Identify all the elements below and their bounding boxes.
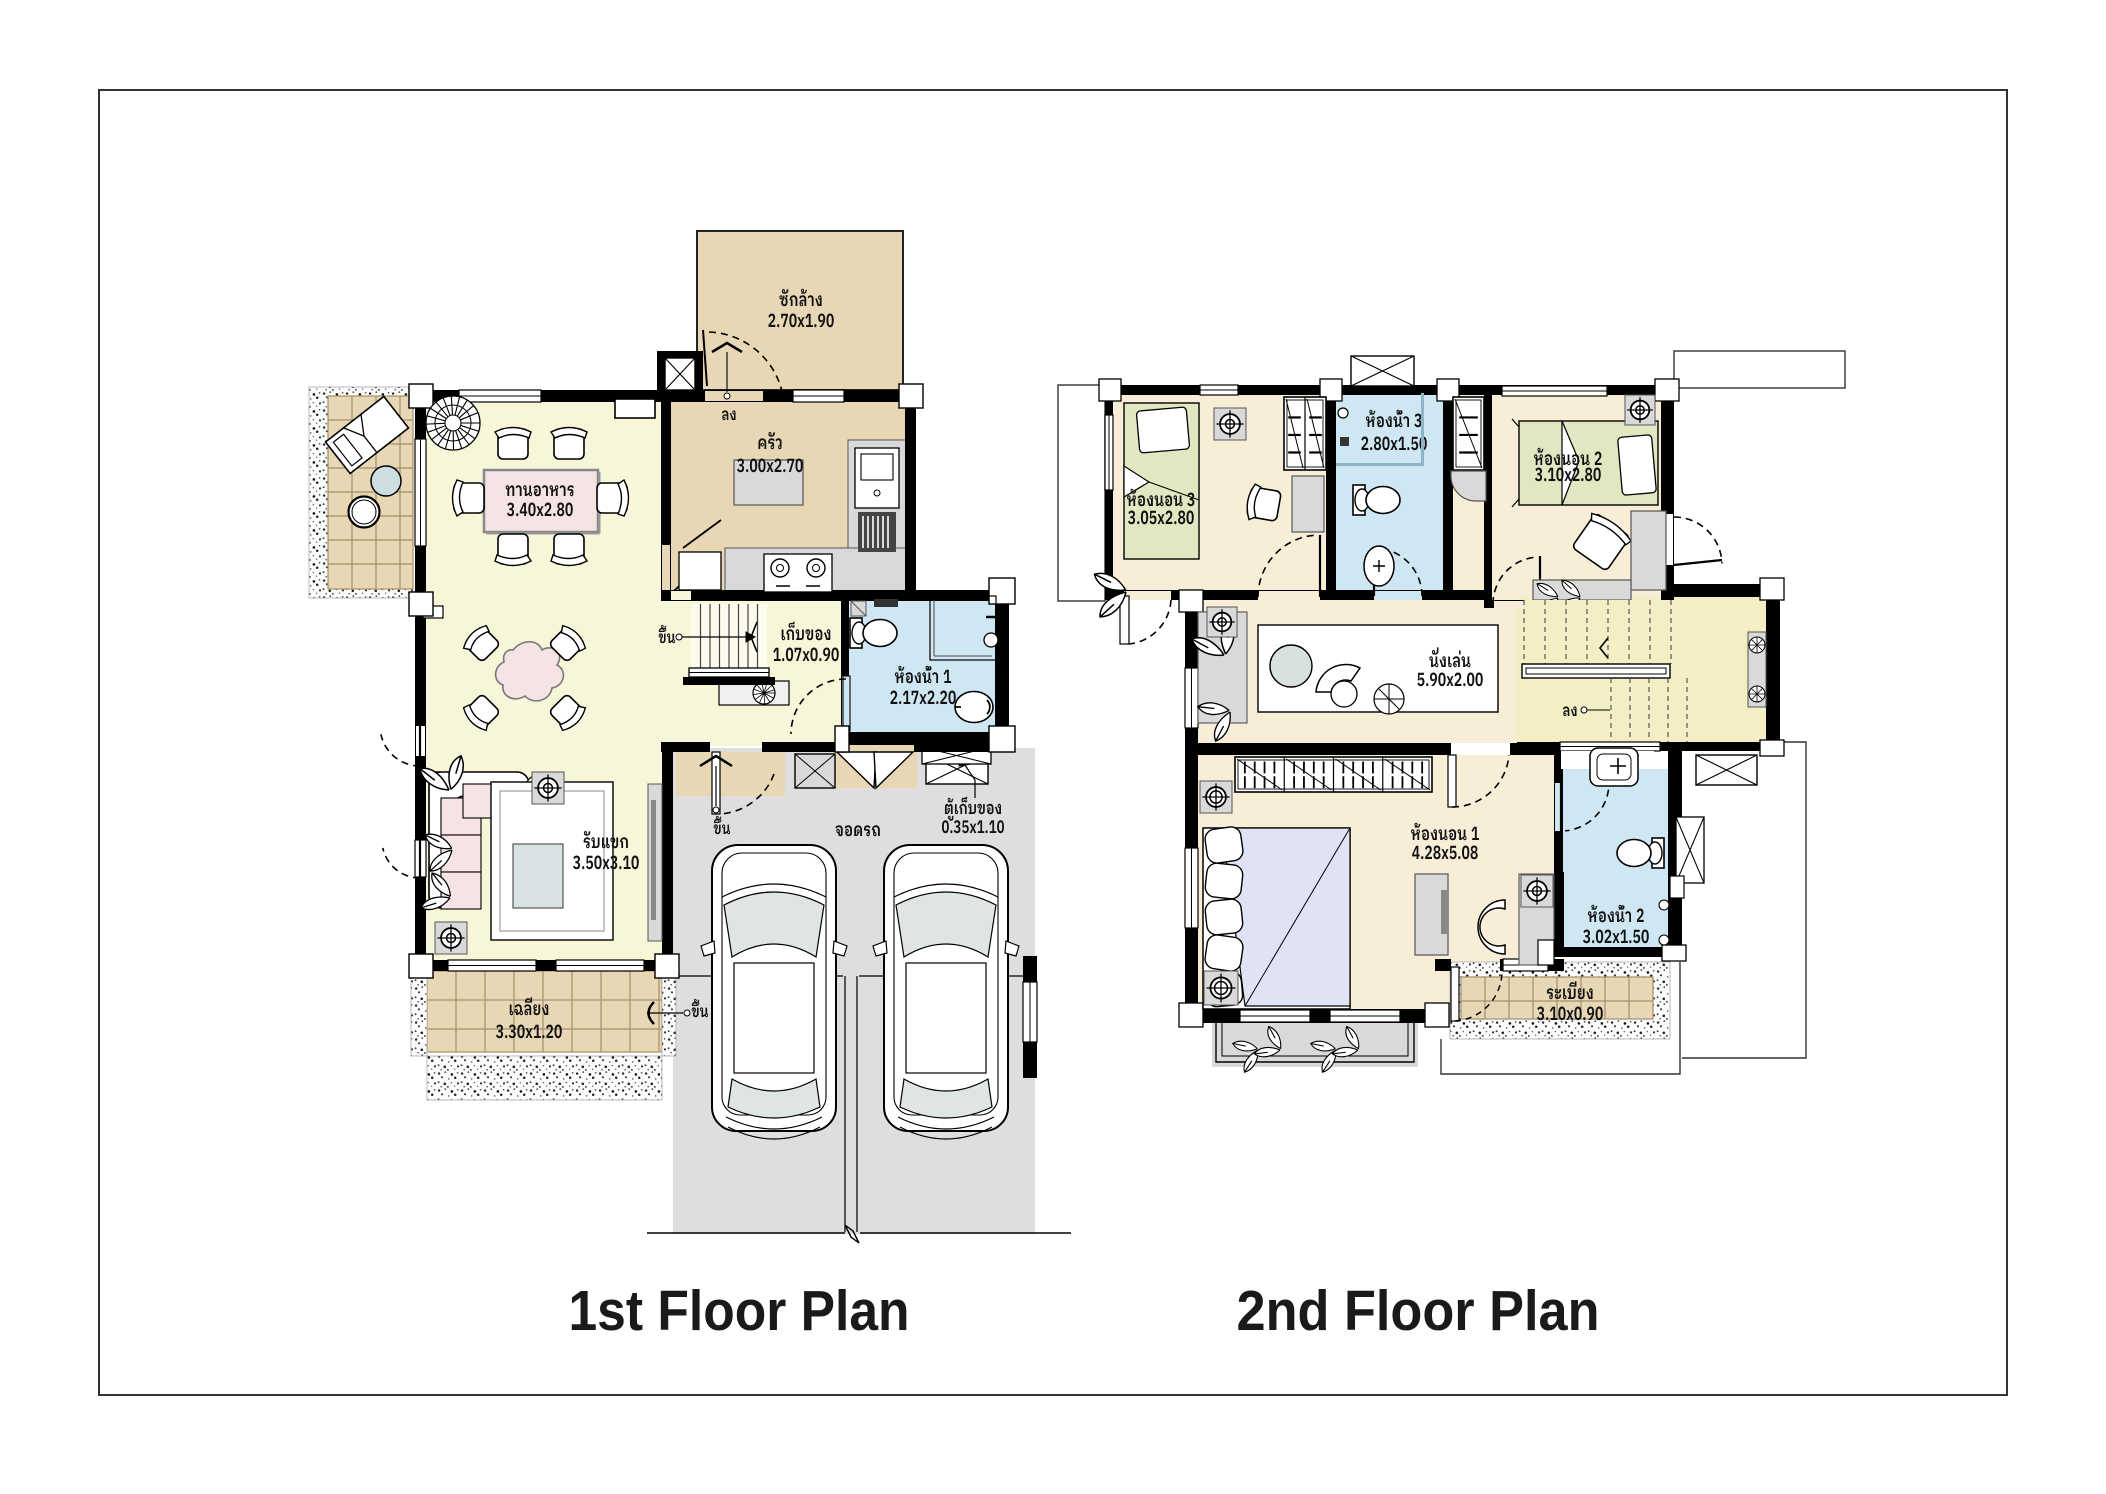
svg-text:2nd Floor Plan: 2nd Floor Plan xyxy=(1237,1279,1600,1343)
svg-text:1st Floor Plan: 1st Floor Plan xyxy=(569,1279,910,1343)
